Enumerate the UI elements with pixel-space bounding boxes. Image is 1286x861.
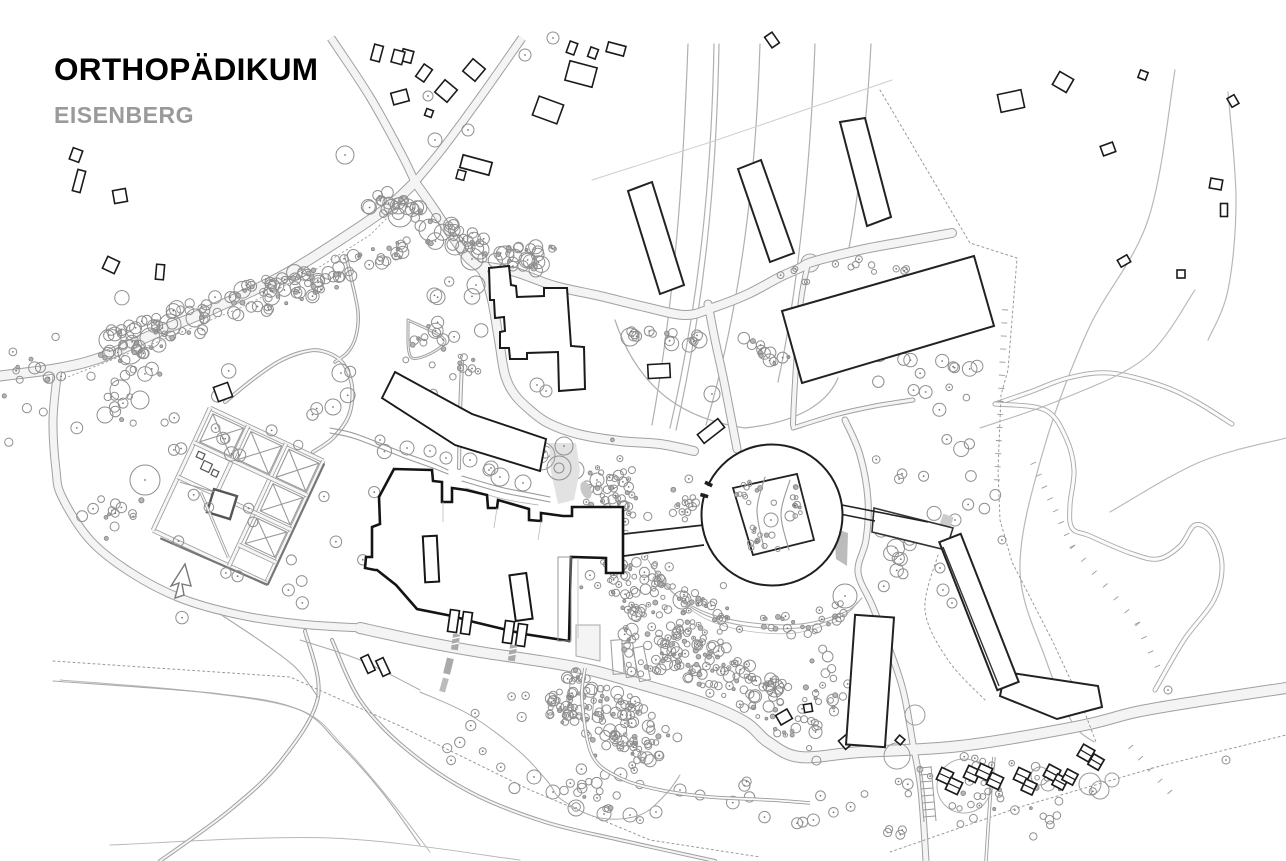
svg-text:ORTHOPÄDIKUM: ORTHOPÄDIKUM [54, 51, 318, 87]
svg-text:EISENBERG: EISENBERG [54, 102, 194, 128]
